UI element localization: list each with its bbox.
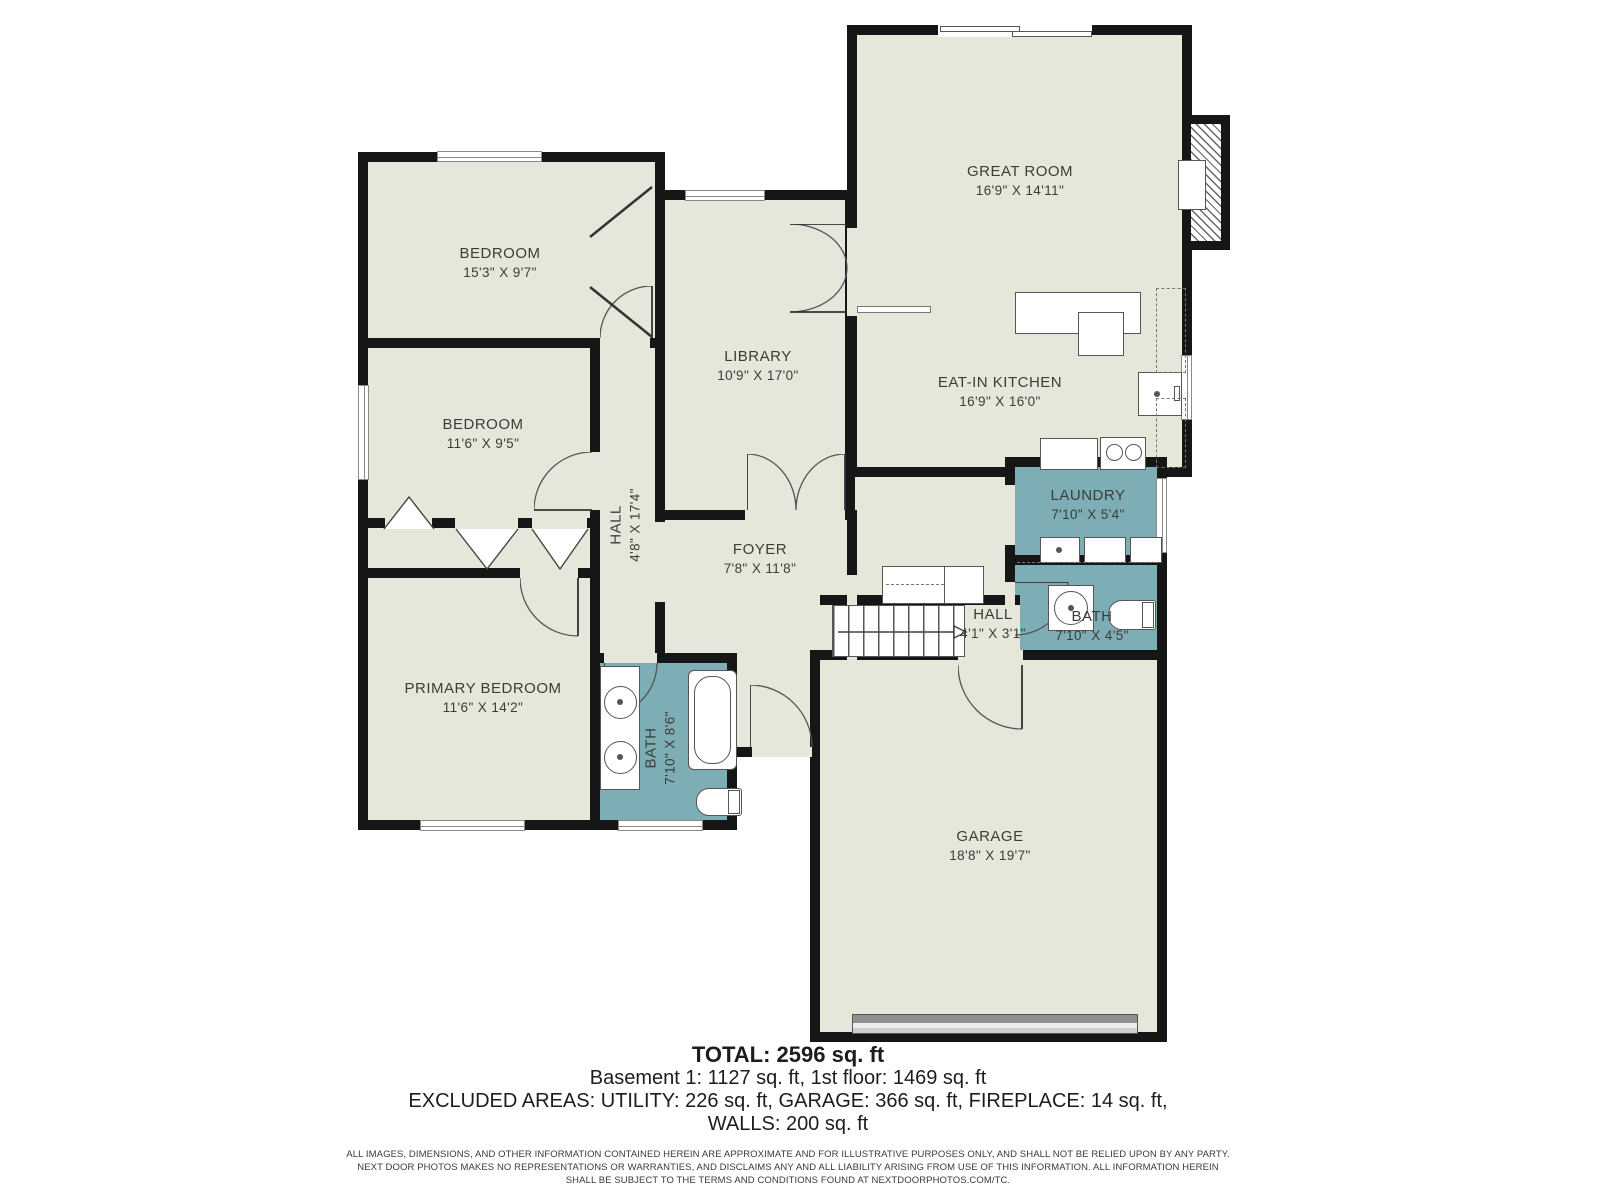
toilet-tank (728, 790, 740, 814)
toilet-tank (1142, 602, 1154, 628)
laundry-counter-dashed (1017, 562, 1157, 563)
door-arc-library-french-top (790, 224, 849, 270)
pantry-shelf-dashed (886, 584, 944, 585)
dryer-fixture (1130, 537, 1162, 563)
sink-drain-dot (617, 754, 623, 760)
window (685, 190, 765, 201)
wall-opening (655, 522, 665, 602)
room-dims: 15'3" X 9'7" (459, 265, 540, 280)
room-label-garage: GARAGE 18'8" X 19'7" (949, 828, 1031, 863)
window (437, 151, 542, 162)
pantry-closet (882, 566, 984, 604)
room-label-hall-stairs: HALL 4'1" X 3'1" (960, 606, 1026, 641)
floor-areas-text: Basement 1: 1127 sq. ft, 1st floor: 1469… (0, 1067, 1576, 1090)
room-dims: 18'8" X 19'7" (949, 848, 1031, 863)
closet-bifold-icon (531, 528, 589, 570)
door-arc-library-french-bottom (790, 268, 849, 314)
washer-fixture (1084, 537, 1126, 563)
half-wall-counter (857, 306, 931, 313)
stair-direction-arrow (834, 620, 970, 644)
angled-closet-walls (588, 175, 660, 347)
room-dims: 7'10" X 8'6" (663, 711, 678, 785)
door-arc-garage-entry (958, 665, 1024, 731)
bathtub-basin (694, 676, 731, 764)
total-area-text: TOTAL: 2596 sq. ft (0, 1042, 1576, 1067)
room-dims: 7'10" X 5'4" (1051, 507, 1126, 522)
stove-burner (1106, 444, 1123, 461)
closet-bifold-icon (383, 496, 435, 530)
room-name: BEDROOM (459, 245, 540, 262)
room-label-foyer: FOYER 7'8" X 11'8" (724, 541, 797, 576)
disclaimer-line: SHALL BE SUBJECT TO THE TERMS AND CONDIT… (0, 1174, 1576, 1187)
room-dims: 16'9" X 16'0" (938, 394, 1062, 409)
room-label-library: LIBRARY 10'9" X 17'0" (717, 348, 799, 383)
room-dims: 4'1" X 3'1" (960, 626, 1026, 641)
room-name: LIBRARY (717, 348, 799, 365)
window (358, 385, 369, 480)
room-dims: 16'9" X 14'11" (967, 183, 1073, 198)
room-name: HALL (960, 606, 1026, 623)
wall-opening (532, 518, 587, 528)
upper-cabinets-dashed (1156, 288, 1186, 373)
walls-area-text: WALLS: 200 sq. ft (0, 1113, 1576, 1136)
floor-plan-canvas: GREAT ROOM 16'9" X 14'11" EAT-IN KITCHEN… (0, 0, 1600, 1200)
room-dims: 11'6" X 9'5" (442, 436, 523, 451)
laundry-sink-dot (1056, 547, 1062, 553)
wall-opening (455, 518, 518, 528)
room-name: PRIMARY BEDROOM (405, 680, 562, 697)
sliding-door-pane (940, 26, 1020, 32)
door-arc-library-right-leaf (796, 454, 847, 512)
closet-bifold-icon (455, 528, 519, 570)
kitchen-sink-dot (1154, 391, 1160, 397)
room-name: GREAT ROOM (967, 163, 1073, 180)
room-label-eat-in-kitchen: EAT-IN KITCHEN 16'9" X 16'0" (938, 374, 1062, 409)
wall-opening (958, 650, 1023, 665)
kitchen-counter (1040, 438, 1098, 470)
room-name: FOYER (724, 541, 797, 558)
room-dims: 7'8" X 11'8" (724, 561, 797, 576)
disclaimer-line: ALL IMAGES, DIMENSIONS, AND OTHER INFORM… (0, 1148, 1576, 1161)
room-name: BATH (1055, 608, 1129, 625)
excluded-areas-text: EXCLUDED AREAS: UTILITY: 226 sq. ft, GAR… (0, 1090, 1576, 1113)
room-name: EAT-IN KITCHEN (938, 374, 1062, 391)
disclaimer: ALL IMAGES, DIMENSIONS, AND OTHER INFORM… (0, 1148, 1576, 1187)
room-label-hall-upper: HALL 4'8" X 17'4" (608, 488, 643, 562)
room-label-great-room: GREAT ROOM 16'9" X 14'11" (967, 163, 1073, 198)
room-dims: 10'9" X 17'0" (717, 368, 799, 383)
room-label-bedroom-2: BEDROOM 11'6" X 9'5" (442, 416, 523, 451)
window (618, 820, 703, 831)
room-name: BEDROOM (442, 416, 523, 433)
disclaimer-line: NEXT DOOR PHOTOS MAKES NO REPRESENTATION… (0, 1161, 1576, 1174)
sliding-door-pane (1012, 31, 1092, 37)
door-arc-library-left-leaf (747, 454, 798, 512)
room-name: LAUNDRY (1051, 487, 1126, 504)
garage-door (852, 1014, 1138, 1034)
room-dims: 11'6" X 14'2" (405, 700, 562, 715)
stove-burner (1125, 444, 1142, 461)
room-dims: 4'8" X 17'4" (628, 488, 643, 562)
wall-opening (604, 653, 657, 663)
door-arc-bedroom-2 (534, 452, 594, 512)
room-name: HALL (608, 488, 625, 562)
fireplace-firebox (1178, 160, 1206, 210)
pantry-divider (944, 566, 945, 604)
sink-drain-dot (617, 699, 623, 705)
room-label-bath-primary: BATH 7'10" X 8'6" (643, 711, 678, 785)
wall-opening (1005, 485, 1015, 545)
room-label-bath-right: BATH 7'10" X 4'5" (1055, 608, 1129, 643)
room-label-laundry: LAUNDRY 7'10" X 5'4" (1051, 487, 1126, 522)
window (420, 820, 525, 831)
room-label-bedroom-1: BEDROOM 15'3" X 9'7" (459, 245, 540, 280)
room-label-primary-bedroom: PRIMARY BEDROOM 11'6" X 14'2" (405, 680, 562, 715)
area-summary: TOTAL: 2596 sq. ft Basement 1: 1127 sq. … (0, 1042, 1576, 1136)
upper-cabinets-dashed (1156, 398, 1186, 468)
door-arc-front-entry (750, 685, 814, 749)
room-dims: 7'10" X 4'5" (1055, 628, 1129, 643)
room-name: GARAGE (949, 828, 1031, 845)
room-name: BATH (643, 711, 660, 785)
door-arc-primary-bedroom (520, 578, 580, 638)
kitchen-appliance (1078, 312, 1124, 356)
